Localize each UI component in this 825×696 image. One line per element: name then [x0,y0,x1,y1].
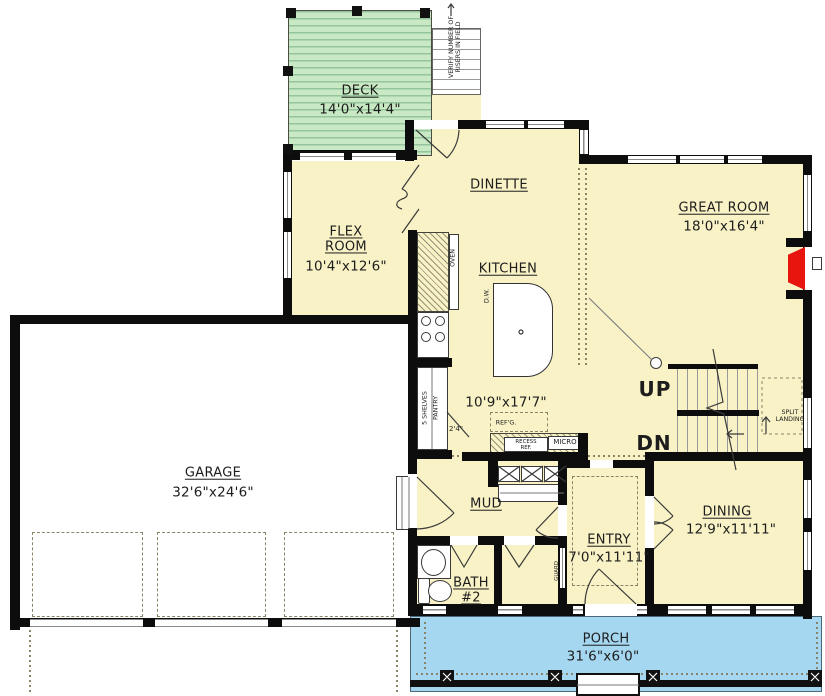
window [804,480,811,518]
wall [405,120,414,161]
kitchen-island [493,283,553,377]
entry-label: ENTRY [587,534,631,549]
porch-post [440,670,454,684]
fixture [812,257,822,270]
deck-post [283,66,293,76]
fixture-round [650,357,662,369]
dashed-line [816,622,818,672]
fixture-round [435,316,445,326]
dashed-line [585,168,587,366]
window [486,121,524,128]
fixture-round [421,316,431,326]
window [284,172,291,218]
window [804,398,811,448]
door-opening [645,496,654,548]
fixture [521,466,543,482]
window [352,153,396,160]
verify-risers-note: VERIFY NUMBER OF RISERS IN FIELD [448,16,462,78]
dashed-line [588,455,645,457]
window [712,606,750,614]
deck-post [352,6,362,16]
wall [488,461,498,487]
dashed-box [32,532,143,617]
door-opening [585,604,637,616]
garage-door [30,619,143,627]
wall [786,238,812,247]
door-opening [408,474,417,528]
fixture-round [421,549,446,576]
window [284,232,291,278]
deck-post [286,8,296,18]
fixture-round [421,332,431,342]
pantry-label: PANTRY [432,396,439,420]
window [300,153,344,160]
porch-steps [576,673,640,696]
fixture [498,484,566,502]
door-opening [558,505,567,536]
dashed-line [29,630,31,694]
porch-post [646,670,660,684]
window [668,606,706,614]
deck-post [420,8,430,18]
garage-door [155,619,268,627]
fixture [498,466,520,482]
flex-room-dims: 10'4"x12'6" [305,259,387,274]
shelves-label: 5 SHELVES [421,391,428,425]
stairs-up-label: UP [639,378,672,400]
stair-treads [677,368,759,410]
window [728,156,762,163]
dashed-box [157,532,266,617]
split-landing-label: SPLIT LANDING [776,409,805,423]
door-opening [504,536,535,545]
great-room-dims: 18'0"x16'4" [683,219,765,234]
fixture-round [428,580,452,602]
deck-label: DECK [341,85,378,100]
dashed-box [284,532,394,617]
micro-label: MICRO [553,439,576,447]
fixture [449,234,459,310]
wall [408,358,452,367]
deck-dims: 14'0"x14'4" [319,102,401,117]
window [423,606,446,614]
deck-stair-arrow [448,4,454,16]
wall [408,230,417,616]
door-opening [804,247,812,290]
wall [535,536,567,545]
recess-fridge-label: RECESS REF. [515,439,536,451]
window [560,548,565,588]
window [680,156,724,163]
bath2-label: BATH #2 [453,576,489,605]
dashed-line [396,630,398,694]
flex-room-label: FLEX ROOM [325,225,367,254]
dashed-line [424,622,426,672]
porch-post [808,670,822,684]
wall [668,364,758,369]
dining-label: DINING [702,506,751,521]
porch-dims: 31'6"x6'0" [567,649,640,664]
window [804,532,811,570]
window [756,606,794,614]
wall [10,315,417,324]
deck-post [283,144,293,154]
dining-dims: 12'9"x11'11" [686,522,776,537]
entry-dims: 7'0"x11'11" [568,550,650,565]
hatched-counter [417,232,449,312]
kitchen-dims: 10'9"x17'7" [465,395,547,410]
window [637,606,647,614]
dinette-label: DINETTE [470,179,528,194]
door-opening [414,120,458,129]
guard-label: GUARD [554,561,560,581]
garage-dims: 32'6"x24'6" [172,485,254,500]
wall [786,290,812,299]
stairs-down-label: DN [636,432,671,454]
wall [408,450,452,459]
window [628,156,676,163]
window [804,175,811,231]
stair-treads [677,416,759,452]
garage-label: GARAGE [185,467,241,482]
window [580,130,588,154]
dashed-line [578,168,580,366]
porch-post [548,670,562,684]
pantry-depth-label: 2'4" [449,426,463,434]
wall [10,315,20,630]
oven-label: OVEN [449,249,456,267]
fridge-label: REF'G. [496,419,517,426]
great-room-label: GREAT ROOM [679,202,770,217]
dashed-box [572,476,638,586]
dishwasher-label: D.W. [483,289,490,303]
window [573,606,583,614]
door-opening [590,460,613,468]
mud-label: MUD [470,498,502,513]
porch-label: PORCH [583,633,630,648]
garage-door [282,619,396,627]
window [528,121,564,128]
fixture-round [435,332,445,342]
wall [677,410,759,416]
door-opening [450,536,478,545]
floor-plan: DECK 14'0"x14'4" FLEX ROOM 10'4"x12'6" D… [0,0,825,696]
window [498,606,522,614]
wall [578,433,588,461]
kitchen-label: KITCHEN [479,263,537,278]
